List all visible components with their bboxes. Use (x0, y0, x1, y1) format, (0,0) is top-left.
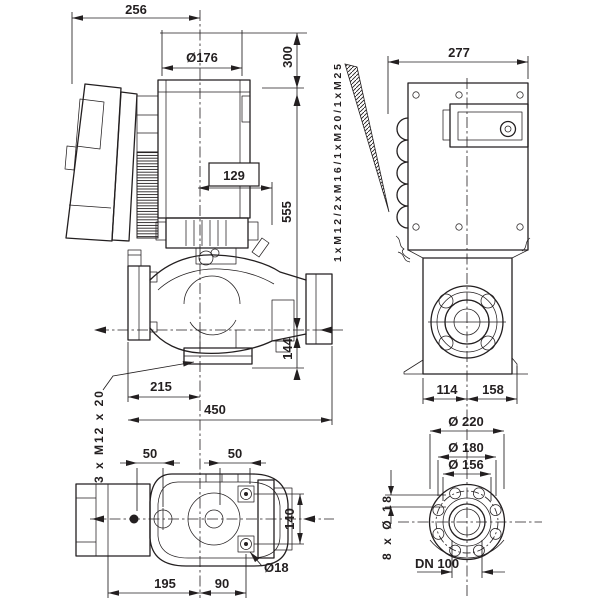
rear-pump-casing (396, 236, 530, 374)
cable-gland-leader (345, 64, 389, 212)
terminal-box (65, 84, 137, 241)
technical-drawing-page: 256 Ø176 300 555 144 129 215 450 (0, 0, 600, 600)
label-nominal-diameter: DN 100 (415, 556, 459, 571)
side-view: 256 Ø176 300 555 144 129 215 450 (65, 2, 344, 598)
dim-center-to-right: 158 (482, 382, 504, 397)
dim-length-right: 90 (215, 576, 229, 591)
flange-view: Ø 220 Ø 180 Ø 156 8 x Ø 18 DN 100 (380, 414, 542, 578)
flange-view-dimensions: Ø 220 Ø 180 Ø 156 8 x Ø 18 DN 100 (380, 414, 505, 578)
dim-outer-diameter: Ø 220 (448, 414, 483, 429)
motor-body (137, 80, 250, 238)
dim-center-to-left: 114 (437, 382, 459, 397)
label-cable-glands: 1xM12/2xM16/1xM20/1xM25 (332, 64, 344, 262)
top-volute-outline (150, 474, 288, 566)
dim-port-to-port: 450 (204, 402, 226, 417)
pump-volute (128, 255, 332, 364)
dim-rear-width: 277 (448, 45, 470, 60)
rear-view: 277 1xM12/2xM16/1xM20/1xM25 114 158 (332, 45, 530, 598)
rear-view-dimensions: 277 1xM12/2xM16/1xM20/1xM25 114 158 (332, 45, 528, 404)
dim-hole-right: 50 (228, 446, 242, 461)
rear-motor-housing (397, 83, 528, 250)
top-foot-plate (76, 484, 172, 556)
dim-bolt-spacing: 140 (282, 508, 297, 530)
dim-flange-to-center: 215 (150, 379, 172, 394)
label-foot-thread: 3 x M12 x 20 (92, 391, 106, 483)
dim-hole-left: 50 (143, 446, 157, 461)
cable-gland (501, 122, 516, 137)
flow-arrow-right (320, 327, 332, 334)
dim-neck-diameter: Ø 156 (448, 457, 483, 472)
dim-length-left: 195 (154, 576, 176, 591)
foot-hole-filled (130, 515, 139, 524)
dim-seal-callout: 129 (223, 168, 245, 183)
dim-width-top: 256 (125, 2, 147, 17)
flow-arrow-left (94, 327, 106, 334)
pump-dimension-drawing: 256 Ø176 300 555 144 129 215 450 (0, 0, 600, 600)
dim-bolt-circle: Ø 180 (448, 440, 483, 455)
dim-motor-diameter: Ø176 (186, 50, 218, 65)
rear-terminal-box (450, 104, 528, 147)
dim-center-to-base: 144 (280, 337, 295, 359)
top-view: 50 50 140 Ø18 195 90 (76, 446, 334, 598)
dim-height-total: 555 (279, 201, 294, 223)
label-hole-diameter: Ø18 (264, 560, 289, 575)
label-bolt-holes: 8 x Ø 18 (380, 496, 394, 560)
dim-height-upper: 300 (280, 46, 295, 68)
